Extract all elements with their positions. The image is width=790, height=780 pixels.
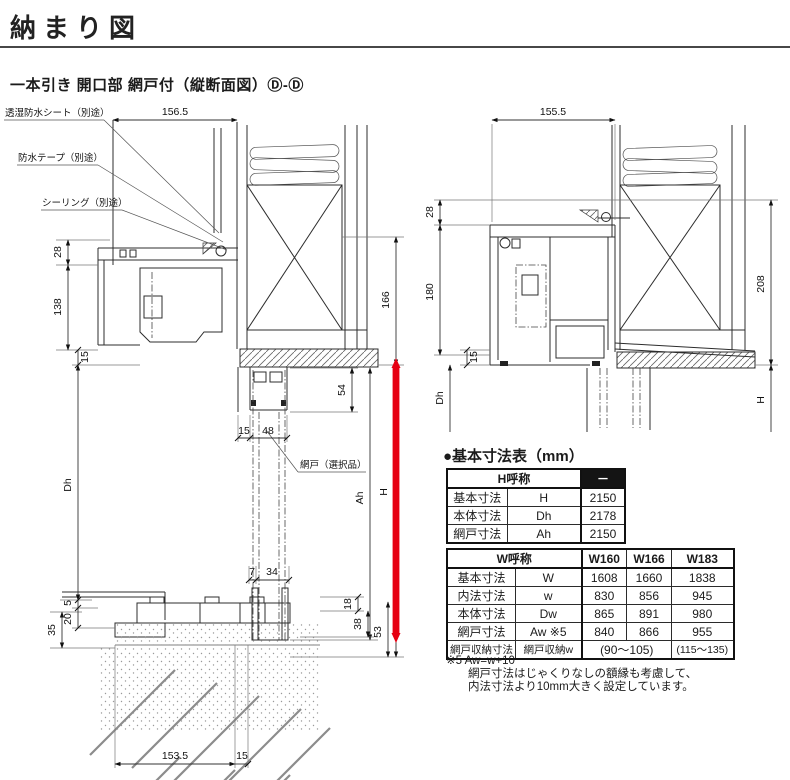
row-value: 945: [672, 587, 734, 605]
dim-h: H: [755, 396, 767, 404]
row-name: 本体寸法: [447, 507, 507, 525]
table-row: 網戸寸法 Ah 2150: [447, 525, 625, 544]
ground-hatch: [90, 648, 330, 780]
head-frame: [98, 120, 238, 345]
h-dimension-red-highlight: [393, 367, 400, 634]
row-symbol: Ah: [507, 525, 581, 544]
dim-right-53: 53: [372, 626, 384, 638]
h-dimension-table: H呼称 － 基本寸法 H 2150 本体寸法 Dh 2178 網戸寸法 Ah 2…: [446, 468, 626, 544]
row-value: 980: [672, 605, 734, 623]
dim-head-height: 138: [52, 298, 64, 316]
row-name: 網戸寸法: [447, 623, 516, 641]
dim-leaf-34: 34: [266, 566, 278, 578]
callout-sealing: シーリング（別途）: [41, 197, 227, 250]
row-symbol: H: [507, 488, 581, 507]
table-row: 網戸寸法 Aw ※5 840 866 955: [447, 623, 734, 641]
row-value: 891: [627, 605, 672, 623]
dim-bottom-15: 15: [236, 750, 248, 762]
sealing-detail: [580, 210, 630, 222]
row-symbol: W: [516, 568, 582, 587]
dim-inner-15: 15: [79, 351, 91, 363]
floor-slab: [240, 349, 378, 367]
dimension-table-heading: ●基本寸法表（mm）: [443, 445, 584, 466]
screen-pocket: [238, 367, 287, 412]
row-value: 830: [582, 587, 627, 605]
table-row: 基本寸法 H 2150: [447, 488, 625, 507]
dim-bottom-width: 153.5: [162, 750, 188, 762]
w-table-col-header: W160: [582, 549, 627, 568]
dim-sill-35: 35: [46, 624, 58, 636]
row-symbol: Dh: [507, 507, 581, 525]
dim-right-38: 38: [352, 618, 364, 630]
footnote-line: 網戸寸法はじゃくりなしの額縁も考慮して、: [446, 668, 697, 681]
dim-pocket-48: 48: [262, 425, 274, 437]
row-name: 本体寸法: [447, 605, 516, 623]
table-row: 本体寸法 Dh 2178: [447, 507, 625, 525]
dim-leaf-7: 7: [249, 566, 255, 578]
callout-screen: 網戸（選択品）: [266, 430, 367, 472]
head-frame: [490, 210, 630, 366]
footnote-line: 内法寸法より10mm大きく設定しています。: [446, 681, 697, 694]
dim-right-18: 18: [342, 598, 354, 610]
w-table-name-header: W呼称: [447, 549, 582, 568]
sill-assembly: [62, 592, 320, 645]
x-brace-panel: [620, 185, 720, 330]
dim-head-offset: 28: [424, 206, 436, 218]
h-table-col-header: －: [581, 469, 625, 488]
w-table-col-header: W183: [672, 549, 734, 568]
dim-dh: Dh: [62, 478, 74, 492]
section-subtitle: 一本引き 開口部 網戸付（縦断面図）Ⓓ-Ⓓ: [10, 74, 304, 95]
row-value: 1608: [582, 568, 627, 587]
dim-ah: Ah: [354, 491, 366, 504]
callout-sealing-label: シーリング（別途）: [42, 197, 128, 209]
row-value: 2150: [581, 488, 625, 507]
row-symbol: w: [516, 587, 582, 605]
right-section-drawing: 155.5 28 180 15 Dh 208 H: [420, 100, 790, 445]
dim-right-208: 208: [755, 275, 767, 293]
row-value: 2178: [581, 507, 625, 525]
dim-h: H: [378, 488, 390, 496]
row-value: 865: [582, 605, 627, 623]
insulation-batt: [250, 144, 339, 185]
left-section-drawing: 透湿防水シート（別途） 防水テープ（別途） シーリング（別途） 網戸（選択品） …: [0, 100, 420, 780]
row-symbol: Aw ※5: [516, 623, 582, 641]
dim-sill-5: 5: [62, 600, 74, 606]
dim-top-width: 155.5: [540, 106, 566, 118]
callout-sheet: 透湿防水シート（別途）: [4, 107, 219, 233]
callout-tape: 防水テープ（別途）: [17, 152, 223, 242]
dim-dh: Dh: [434, 391, 446, 405]
dim-sill-20: 20: [62, 613, 74, 625]
footnotes: ※5 Aw=w+10 網戸寸法はじゃくりなしの額縁も考慮して、 内法寸法より10…: [446, 655, 697, 694]
floor-slab: [617, 352, 755, 368]
row-value: 840: [582, 623, 627, 641]
row-value: 955: [672, 623, 734, 641]
h-table-name-header: H呼称: [447, 469, 581, 488]
right-wall-assembly: [612, 125, 745, 350]
sill-below-frame: [587, 368, 650, 432]
dim-pocket-54: 54: [336, 384, 348, 396]
insulation-batt: [623, 145, 717, 186]
h-table-header-row: H呼称 －: [447, 469, 625, 488]
right-drawing-dimensions: 155.5 28 180 15 Dh 208 H: [424, 106, 778, 432]
left-wall-assembly: [214, 122, 367, 349]
row-name: 基本寸法: [447, 568, 516, 587]
table-row: 本体寸法 Dw 865 891 980: [447, 605, 734, 623]
x-brace-panel: [247, 185, 342, 330]
title-rule: [0, 46, 790, 48]
dim-inner-15: 15: [468, 351, 480, 363]
callout-screen-label: 網戸（選択品）: [300, 459, 367, 471]
row-value: 866: [627, 623, 672, 641]
w-table-col-header: W166: [627, 549, 672, 568]
table-row: 内法寸法 w 830 856 945: [447, 587, 734, 605]
row-value: 1660: [627, 568, 672, 587]
dim-top-width: 156.5: [162, 106, 188, 118]
row-value: 2150: [581, 525, 625, 544]
dim-right-166: 166: [380, 291, 392, 309]
dim-pocket-15: 15: [238, 425, 250, 437]
row-symbol: Dw: [516, 605, 582, 623]
lock-detail: [500, 238, 520, 248]
callout-sheet-label: 透湿防水シート（別途）: [5, 107, 110, 119]
row-name: 網戸寸法: [447, 525, 507, 544]
w-dimension-table: W呼称 W160 W166 W183 基本寸法 W 1608 1660 1838…: [446, 548, 735, 660]
row-name: 内法寸法: [447, 587, 516, 605]
dim-head-height: 180: [424, 283, 436, 301]
table-row: 基本寸法 W 1608 1660 1838: [447, 568, 734, 587]
dim-head-offset: 28: [52, 246, 64, 258]
row-value: 856: [627, 587, 672, 605]
page: { "page": { "title": "納まり図", "subtitle":…: [0, 0, 790, 780]
footnote-line: ※5 Aw=w+10: [446, 655, 697, 668]
w-table-header-row: W呼称 W160 W166 W183: [447, 549, 734, 568]
callout-tape-label: 防水テープ（別途）: [18, 152, 103, 164]
row-name: 基本寸法: [447, 488, 507, 507]
row-value: 1838: [672, 568, 734, 587]
page-title: 納まり図: [10, 8, 142, 45]
